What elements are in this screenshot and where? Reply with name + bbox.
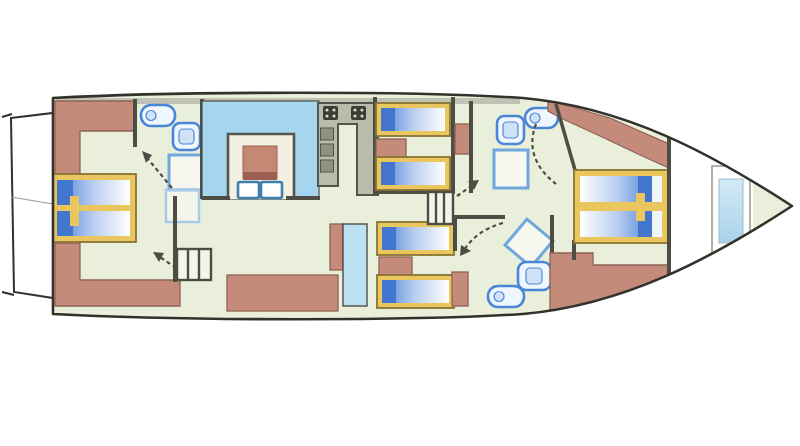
wall: [286, 196, 320, 200]
mattress: [580, 211, 638, 237]
mattress: [580, 176, 638, 202]
bed-center-divider: [636, 193, 645, 221]
closet: [455, 124, 471, 154]
bow-bulkhead-wall: [667, 128, 671, 288]
wall: [455, 215, 505, 219]
pillow: [652, 211, 662, 237]
toilet-bowl: [530, 113, 540, 123]
single-bunk-bed: [377, 222, 454, 255]
bow-hatch-glass: [719, 179, 743, 243]
bow-locker: [671, 126, 753, 286]
mattress: [73, 211, 130, 236]
pillow: [382, 227, 396, 250]
pillow: [381, 108, 395, 131]
stove-icon: [351, 106, 366, 120]
salon-dinette: [200, 99, 320, 200]
salon-window-seat: [343, 224, 367, 306]
mattress: [395, 162, 445, 185]
mattress: [396, 280, 449, 303]
pillow: [382, 280, 396, 303]
nightstand: [376, 139, 406, 157]
shower-tray-icon: [494, 150, 528, 188]
mattress: [73, 180, 130, 205]
wall: [133, 99, 137, 147]
salon-sofa: [227, 275, 338, 311]
wall: [469, 101, 473, 193]
galley-appliance: [321, 128, 334, 140]
wall: [202, 196, 230, 200]
mattress: [396, 227, 449, 250]
single-bunk-bed: [376, 157, 450, 190]
dinette-table-edge: [243, 172, 277, 180]
mattress: [395, 108, 445, 131]
aft-double-bed: [51, 174, 136, 242]
galley-appliance: [321, 160, 334, 172]
swim-platform-deck: [11, 113, 53, 298]
stern-tick-bottom: [2, 292, 14, 295]
nightstand: [379, 257, 412, 275]
bed-center-divider: [70, 196, 79, 226]
toilet-bowl: [146, 111, 156, 121]
stairs-icon: [428, 192, 453, 224]
shower-seat-icon: [166, 190, 199, 222]
salon-sideboard: [330, 224, 343, 270]
stove-icon: [323, 106, 338, 120]
master-double-bed: [574, 170, 669, 243]
sink-basin: [179, 129, 194, 144]
deck-plan-canvas: [0, 0, 800, 446]
swim-platform: [2, 113, 53, 298]
stern-tick-top: [2, 114, 12, 117]
sink-basin: [503, 122, 518, 138]
single-bunk-bed: [376, 103, 450, 136]
toilet-icon: [488, 286, 524, 307]
galley-appliance: [321, 144, 334, 156]
dinette-chair: [238, 182, 259, 198]
sink-basin: [526, 268, 542, 284]
wall: [453, 215, 457, 251]
yacht-deck-plan: [0, 0, 800, 446]
toilet-bowl: [494, 292, 504, 302]
shower-tray-icon: [169, 155, 202, 190]
pillow: [652, 176, 662, 202]
single-bunk-bed: [377, 275, 454, 308]
pillow: [381, 162, 395, 185]
dinette-chair: [261, 182, 282, 198]
wall: [550, 215, 554, 257]
bathroom-cabinet: [452, 272, 468, 306]
stairs-icon: [177, 249, 211, 280]
